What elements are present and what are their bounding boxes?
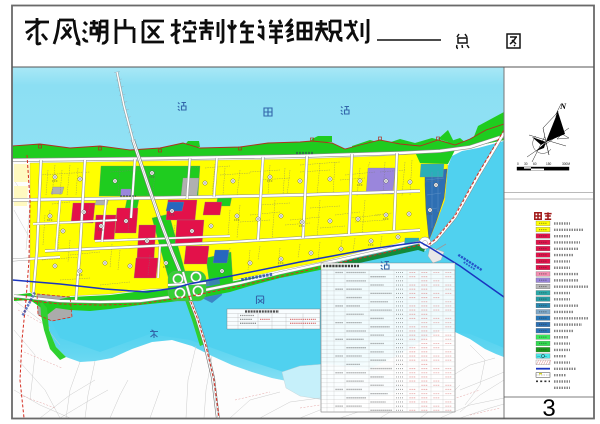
svg-text:300M: 300M xyxy=(562,162,570,166)
svg-text:150: 150 xyxy=(546,162,552,166)
svg-text:3: 3 xyxy=(542,395,555,422)
svg-text:N: N xyxy=(559,101,567,111)
svg-text:30: 30 xyxy=(524,162,528,166)
svg-text:0: 0 xyxy=(517,162,519,166)
svg-text:60: 60 xyxy=(533,162,537,166)
